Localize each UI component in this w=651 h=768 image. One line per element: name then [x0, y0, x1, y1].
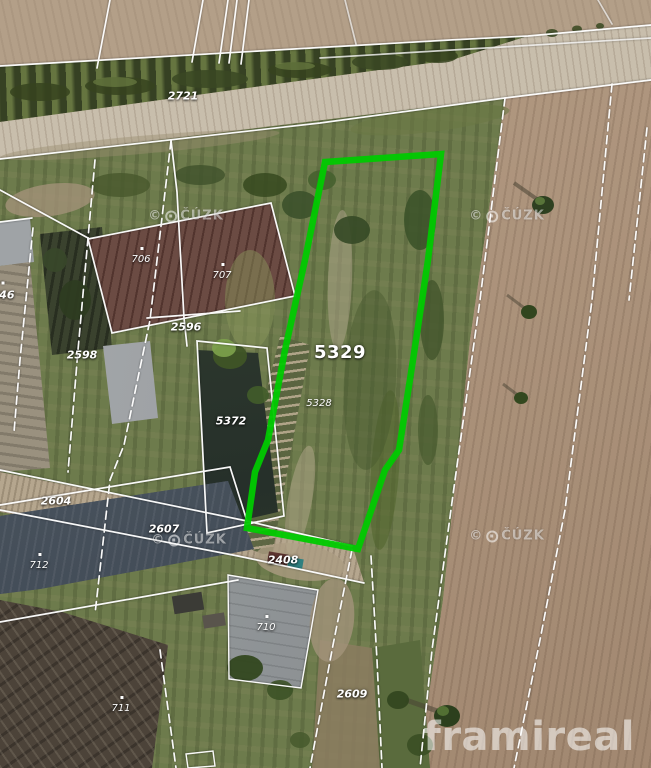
building-point-marker — [140, 247, 143, 250]
cuzk-logo-icon — [486, 530, 498, 542]
cuzk-watermark: ©ČÚZK — [469, 209, 545, 224]
highlighted-parcel-label: 5329 — [314, 344, 366, 362]
building-label: 712 — [29, 561, 48, 571]
cuzk-watermark-text: ČÚZK — [183, 533, 227, 548]
cuzk-watermark: ©ČÚZK — [151, 533, 227, 548]
building-point-marker — [38, 553, 41, 556]
building-point-marker — [2, 282, 5, 285]
parcel-label: 5372 — [216, 416, 247, 427]
parcel-label: 2596 — [171, 322, 202, 333]
framireal-brand-watermark: framireal — [423, 714, 635, 760]
parcel-label: 2604 — [41, 496, 72, 507]
building-label: 711 — [111, 704, 130, 714]
copyright-symbol: © — [151, 533, 165, 548]
parcel-label: 5328 — [306, 399, 331, 409]
cuzk-watermark: ©ČÚZK — [469, 529, 545, 544]
trees-and-shadows — [10, 23, 604, 756]
parcel-label: 2408 — [268, 555, 299, 566]
cuzk-logo-icon — [168, 534, 180, 546]
building-point-marker — [221, 263, 224, 266]
cuzk-watermark-text: ČÚZK — [501, 209, 545, 224]
cuzk-watermark-text: ČÚZK — [180, 209, 224, 224]
aerial-map-canvas[interactable]: 2721 706 707 2596 2598 5372 5329 5328 26… — [0, 0, 651, 768]
parcel-label: 2609 — [337, 689, 368, 700]
building-label: 706 — [131, 255, 150, 265]
map-overlay-graphics — [0, 0, 651, 768]
parcel-label: 546 — [0, 290, 14, 301]
parcel-label: 2598 — [67, 350, 98, 361]
copyright-symbol: © — [148, 209, 162, 224]
building-point-marker — [265, 615, 268, 618]
building-point-marker — [120, 696, 123, 699]
cuzk-watermark: ©ČÚZK — [148, 209, 224, 224]
parcel-label: 2721 — [168, 91, 199, 102]
cuzk-logo-icon — [165, 210, 177, 222]
cuzk-watermark-text: ČÚZK — [501, 529, 545, 544]
copyright-symbol: © — [469, 529, 483, 544]
building-label: 707 — [212, 271, 231, 281]
building-label: 710 — [256, 623, 275, 633]
cuzk-logo-icon — [486, 210, 498, 222]
copyright-symbol: © — [469, 209, 483, 224]
